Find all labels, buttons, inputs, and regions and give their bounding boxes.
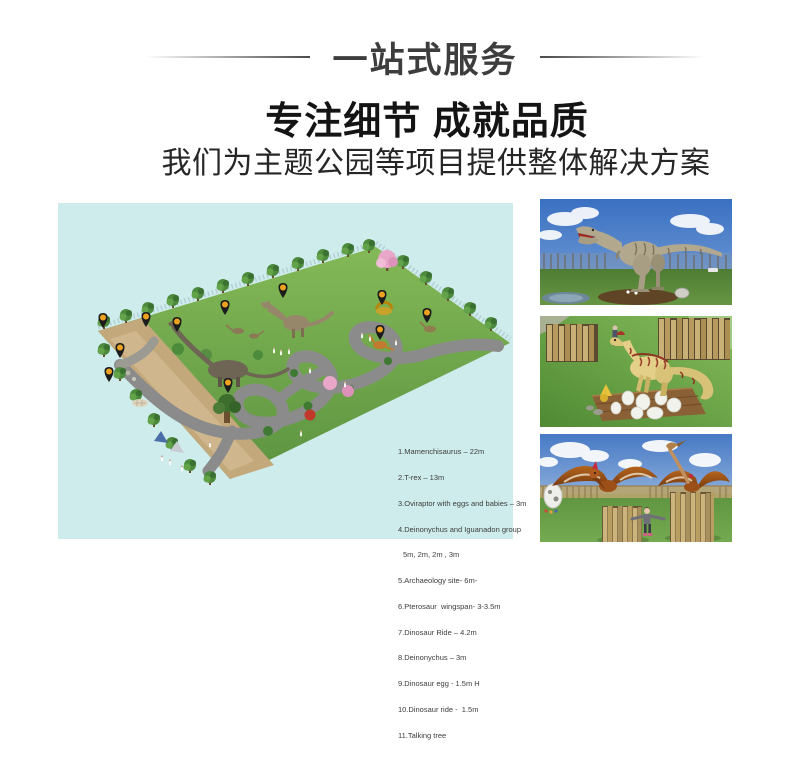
pink-boot [643,533,647,536]
legend-line: 5.Archaeology site- 6m- [398,577,512,586]
subtitle: 我们为主题公园等项目提供整体解决方案 [0,138,800,182]
right-log-pedestal [670,492,714,542]
left-log-pedestal [602,506,642,542]
legend-line: 2.T-rex – 13m [398,474,512,483]
legend-line: 7.Dinosaur Ride – 4.2m [398,629,512,638]
park-plan-image: 1.Mamenchisaurus – 22m 2.T-rex – 13m 3.O… [58,203,513,539]
legend-line: 5m, 2m, 2m , 3m [398,551,512,560]
white-car [708,268,718,272]
banner-line-left [145,56,310,58]
red-bush [305,410,316,421]
log-fence-right [658,318,730,360]
legend-line: 4.Deinonychus and Iguanadon group [398,526,512,535]
legend-line: 11.Talking tree [398,732,512,741]
photo-oviraptor-eggs [540,316,732,427]
pink-boot [648,533,652,536]
photo-pterosaurs [540,434,732,542]
banner: 一站式服务 [80,37,770,77]
attractions-legend: 1.Mamenchisaurus – 22m 2.T-rex – 13m 3.O… [398,431,512,758]
legend-line: 6.Pterosaur wingspan- 3-3.5m [398,603,512,612]
banner-title: 一站式服务 [332,32,517,83]
photo-tyrannosaurus [540,199,732,305]
log-fence-left [546,324,598,362]
legend-line: 9.Dinosaur egg - 1.5m H [398,680,512,689]
crest [689,474,693,478]
legend-line: 8.Deinonychus – 3m [398,654,512,663]
legend-line: 1.Mamenchisaurus – 22m [398,448,512,457]
egg-sculpture [544,484,562,508]
legend-line: 3.Oviraptor with eggs and babies – 3m [398,500,512,509]
legend-line: 10.Dinosaur ride - 1.5m [398,706,512,715]
headline: 专注细节 成就品质 [0,90,800,145]
banner-line-right [540,56,705,58]
pond [542,292,590,304]
rock [675,288,689,298]
